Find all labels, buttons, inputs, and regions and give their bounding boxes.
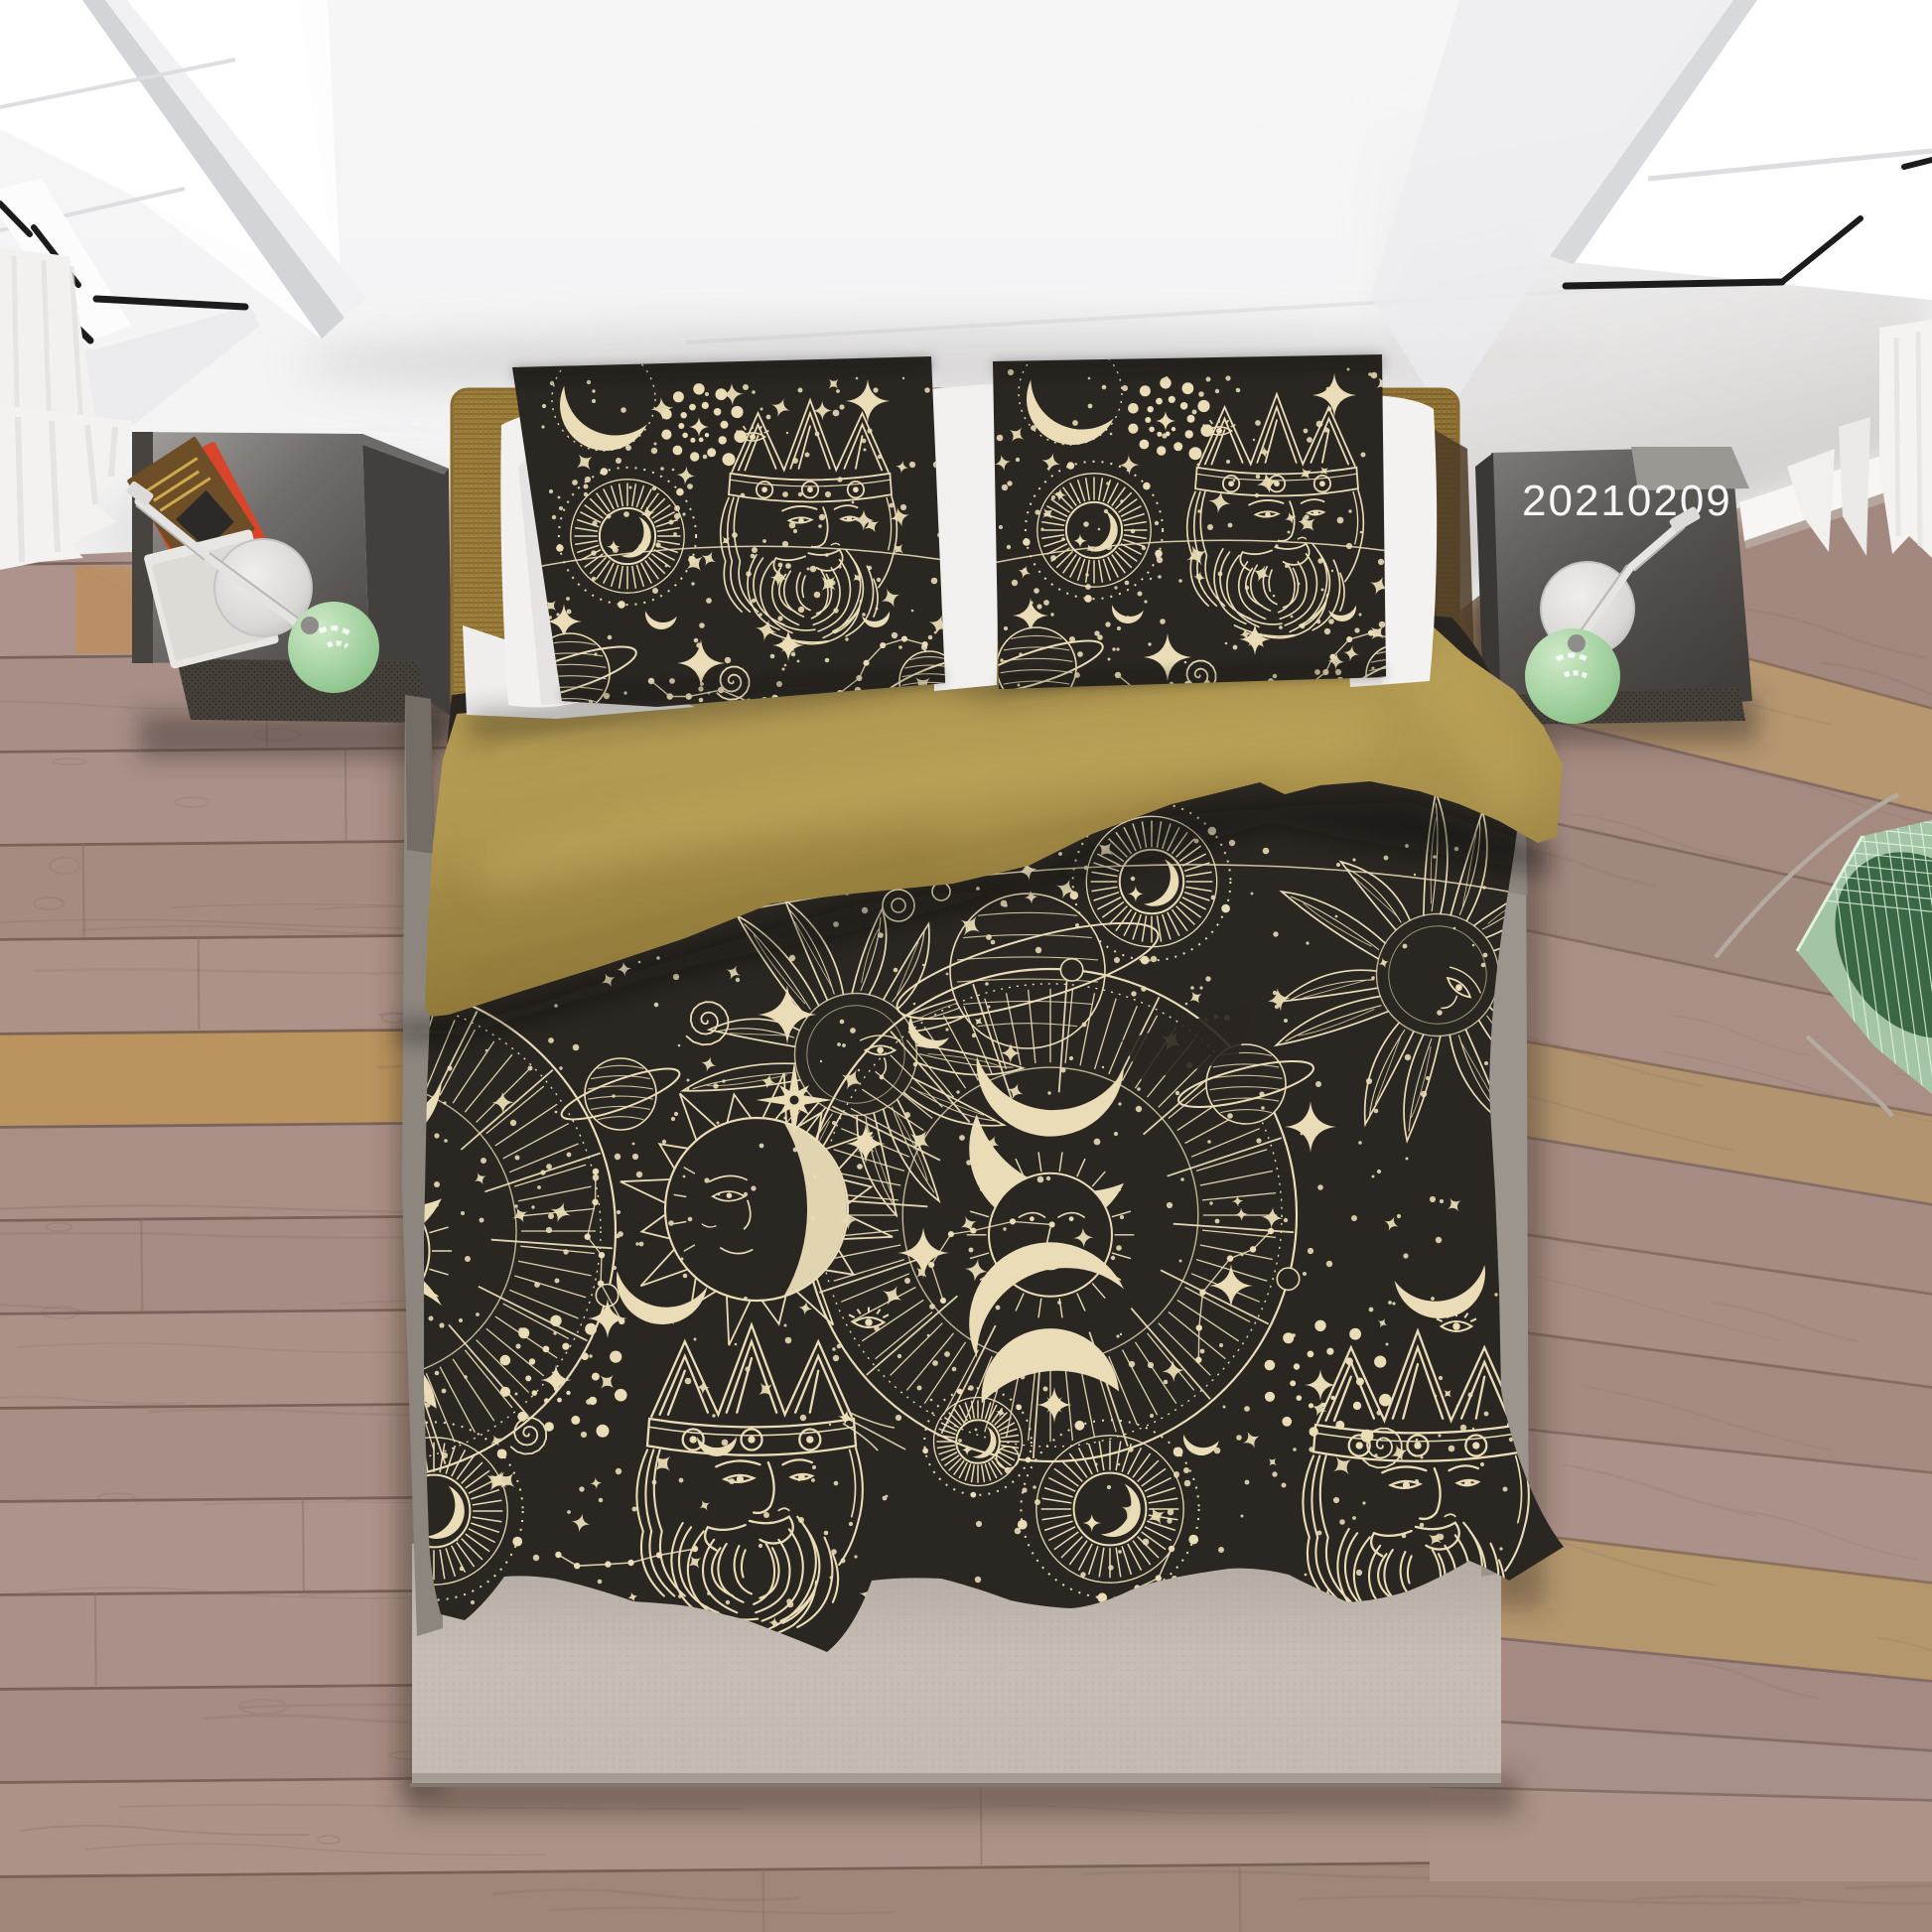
svg-text:20210209: 20210209 xyxy=(1522,477,1732,525)
